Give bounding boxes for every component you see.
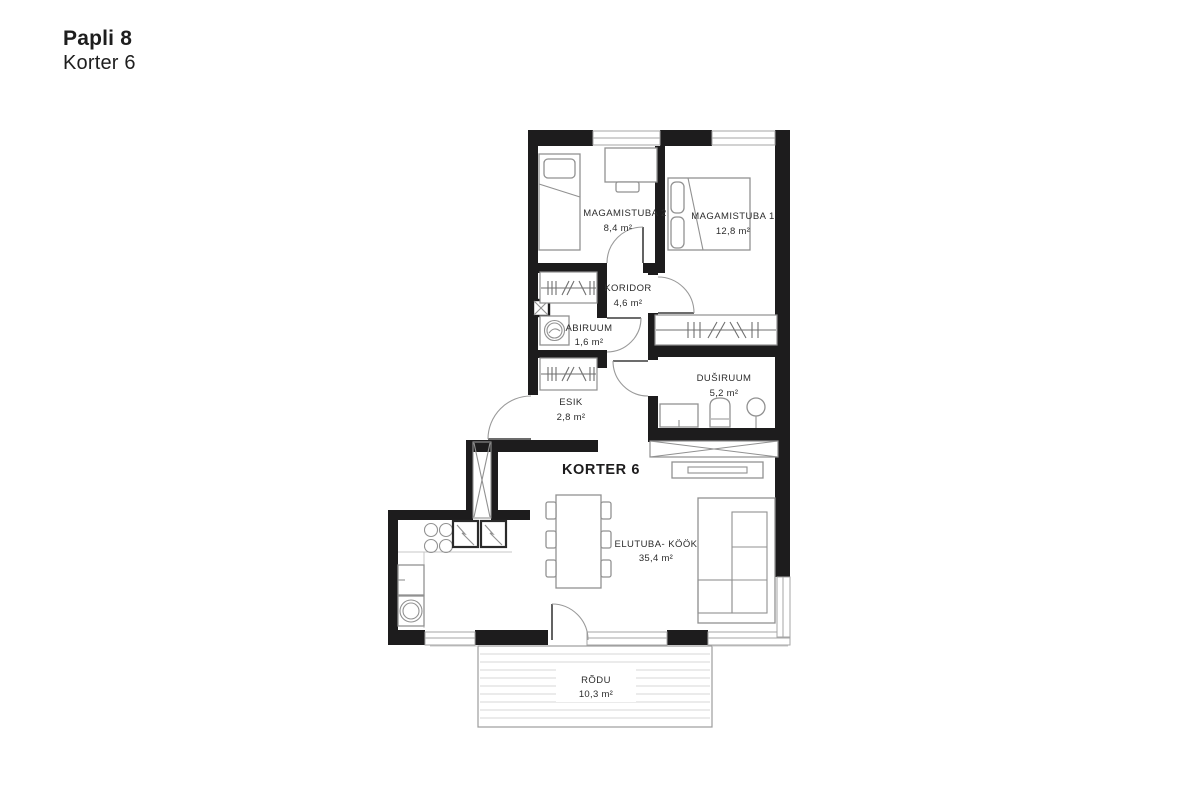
sofa	[698, 498, 775, 623]
dining-chair	[601, 560, 611, 577]
wall-segment	[667, 630, 708, 645]
room-area-magamistuba2: 8,4 m²	[604, 223, 633, 234]
wall-segment	[498, 510, 530, 520]
wall-segment	[775, 146, 790, 577]
room-label-rodu: RÕDU	[581, 675, 611, 686]
wall-segment	[475, 630, 548, 645]
balcony	[430, 646, 788, 727]
pillow	[671, 217, 684, 248]
floor-plan-page: Papli 8 Korter 6	[0, 0, 1180, 788]
wall-segment	[528, 130, 593, 146]
apartment-label: KORTER 6	[562, 462, 640, 478]
room-area-dusiruum: 5,2 m²	[710, 388, 739, 399]
desk-chair	[616, 182, 639, 192]
shower-door-swing	[613, 361, 648, 396]
wall-segment	[775, 130, 790, 146]
wall-segment	[528, 350, 607, 358]
wall-segment	[648, 345, 777, 357]
desk	[605, 148, 657, 182]
room-label-magamistuba2: MAGAMISTUBA 2	[583, 208, 666, 219]
dining-chair	[546, 531, 556, 548]
stove-burner	[440, 540, 453, 553]
dining-chair	[601, 502, 611, 519]
room-label-magamistuba1: MAGAMISTUBA 1	[691, 211, 774, 222]
wall-segment	[648, 428, 790, 442]
toilet	[710, 398, 730, 427]
dining-chair	[546, 560, 556, 577]
room-label-koridor: KORIDOR	[604, 283, 652, 294]
wall-segment	[388, 510, 466, 520]
wall-segment	[648, 263, 658, 275]
room-label-abiruum: ABIRUUM	[566, 323, 613, 334]
wall-segment	[491, 440, 498, 520]
stove-burner	[425, 540, 438, 553]
wall-segment	[388, 510, 398, 645]
wall-segment	[388, 630, 425, 645]
room-area-abiruum: 1,6 m²	[575, 337, 604, 348]
bedroom1-door-swing	[658, 277, 694, 313]
tv-stand	[672, 462, 763, 478]
room-area-esik: 2,8 m²	[557, 412, 586, 423]
room-area-rodu: 10,3 m²	[579, 689, 613, 700]
washbasin	[747, 398, 765, 416]
pillow	[544, 159, 575, 178]
room-area-magamistuba1: 12,8 m²	[716, 226, 750, 237]
wall-segment	[660, 130, 712, 146]
stove-burner	[440, 524, 453, 537]
balcony-door-swing	[552, 604, 588, 640]
floor-plan: MAGAMISTUBA 2 8,4 m² MAGAMISTUBA 1 12,8 …	[0, 0, 1180, 788]
room-label-dusiruum: DUŠIRUUM	[697, 373, 752, 384]
room-label-elutuba: ELUTUBA- KÖÖK	[615, 539, 698, 550]
pillow	[671, 182, 684, 213]
dining-table	[556, 495, 601, 588]
wall-segment	[466, 440, 473, 520]
entry-door-swing	[488, 396, 531, 439]
room-label-esik: ESIK	[559, 397, 583, 408]
wall-segment	[597, 273, 607, 318]
stove-burner	[425, 524, 438, 537]
room-area-koridor: 4,6 m²	[614, 298, 643, 309]
dining-chair	[546, 502, 556, 519]
dining-chair	[601, 531, 611, 548]
room-area-elutuba: 35,4 m²	[639, 553, 673, 564]
